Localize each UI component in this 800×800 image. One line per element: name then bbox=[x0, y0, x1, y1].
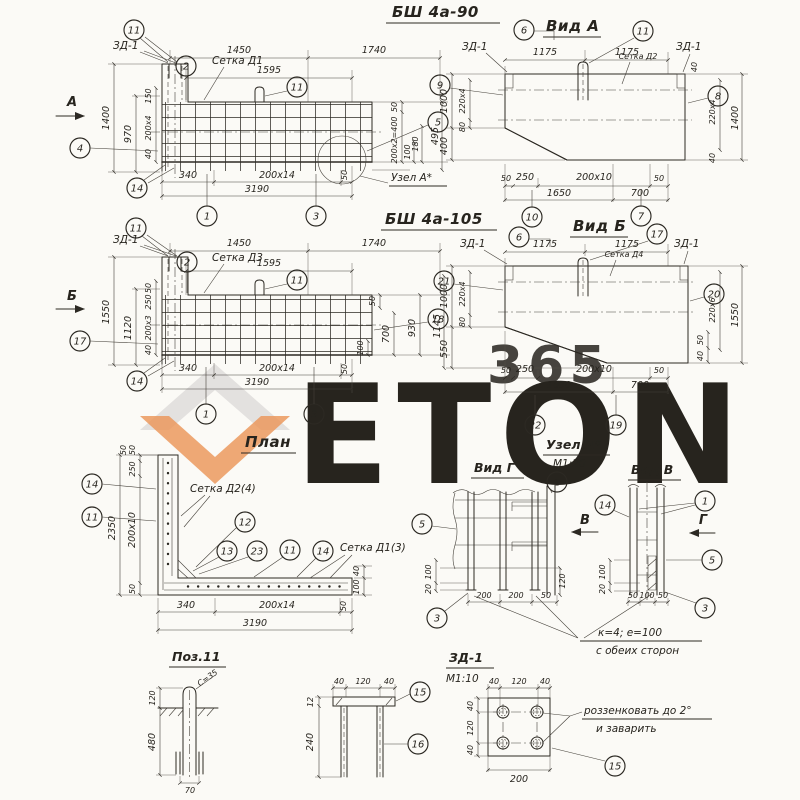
embed-plate-label: ЗД-1 bbox=[676, 41, 701, 53]
dim-label: 250 bbox=[128, 461, 137, 476]
svg-text:11: 11 bbox=[291, 83, 304, 94]
dim-label: 1120 bbox=[123, 316, 134, 340]
dim-label: 1175 bbox=[533, 47, 557, 58]
dim-label: 50 bbox=[119, 445, 128, 455]
svg-text:15: 15 bbox=[414, 688, 427, 699]
detail-title: Поз.11 bbox=[172, 649, 220, 664]
dim-label: 200х14 bbox=[259, 170, 295, 181]
dim-label: 200 bbox=[508, 591, 523, 600]
dim-label: 50 bbox=[368, 296, 377, 306]
dim-label: 200х10 bbox=[576, 172, 612, 183]
dim-label: 50 bbox=[339, 601, 348, 611]
embed-plate-label: ЗД-1 bbox=[113, 40, 138, 52]
mesh-label: Сетка Д3 bbox=[212, 252, 263, 264]
dim-label: 3190 bbox=[245, 184, 269, 195]
dim-label: 40 bbox=[708, 153, 717, 163]
dim-label: 970 bbox=[123, 125, 134, 143]
svg-text:1: 1 bbox=[702, 497, 708, 508]
dim-label: 120 bbox=[466, 720, 475, 735]
svg-text:14: 14 bbox=[131, 184, 144, 195]
dim-label: 150 bbox=[144, 88, 153, 103]
weld-note: к=4; е=100 bbox=[598, 627, 662, 639]
dim-label: 700 bbox=[631, 380, 649, 391]
section-marker: Г bbox=[699, 513, 708, 528]
svg-text:7: 7 bbox=[638, 212, 645, 223]
svg-text:5: 5 bbox=[419, 520, 425, 531]
dim-label: 180 bbox=[411, 136, 420, 151]
svg-text:17: 17 bbox=[651, 230, 664, 241]
detail-scale: М1:10 bbox=[446, 673, 479, 685]
dim-label: 3190 bbox=[243, 618, 267, 629]
dim-label: 120 bbox=[558, 573, 567, 588]
svg-text:22: 22 bbox=[529, 421, 542, 432]
dim-label: 80 bbox=[458, 122, 467, 132]
drawing-title: БШ 4а-90 bbox=[392, 3, 479, 21]
dim-label: 220х4 bbox=[458, 88, 467, 113]
dim-label: 50 bbox=[541, 591, 551, 600]
dim-label: 1000 bbox=[439, 89, 450, 113]
dim-label: 400 bbox=[439, 137, 450, 155]
dim-label: 40 bbox=[466, 745, 475, 755]
dim-label: 50 bbox=[128, 445, 137, 455]
mesh-label: Сетка Д4 bbox=[605, 250, 644, 259]
dim-label: 250 bbox=[144, 294, 153, 309]
svg-text:11: 11 bbox=[291, 276, 304, 287]
svg-text:6: 6 bbox=[521, 26, 527, 37]
dim-label: 40 bbox=[540, 677, 550, 686]
embed-plate-label: ЗД-1 bbox=[113, 234, 138, 246]
dim-label: 550 bbox=[439, 340, 450, 358]
dim-label: 50 bbox=[390, 102, 399, 112]
dim-label: 1550 bbox=[730, 303, 741, 327]
embed-plate-label: ЗД-1 bbox=[460, 238, 485, 250]
svg-text:4: 4 bbox=[77, 144, 83, 155]
dim-label: 240 bbox=[305, 733, 316, 751]
dim-label: 50 bbox=[501, 174, 511, 183]
weld-note: с обеих сторон bbox=[596, 645, 679, 657]
dim-label: 40 bbox=[466, 701, 475, 711]
detail-scale: М1:20 bbox=[553, 458, 586, 470]
dim-label: 220х6 bbox=[708, 297, 717, 322]
dim-label: 100 bbox=[356, 340, 365, 355]
svg-text:8: 8 bbox=[715, 92, 721, 103]
dim-label: 1740 bbox=[362, 238, 386, 249]
svg-text:12: 12 bbox=[239, 518, 252, 529]
dim-label: 50 bbox=[654, 366, 664, 375]
dim-label: 1175 bbox=[615, 239, 639, 250]
dim-label: 50 bbox=[340, 364, 349, 374]
dim-label: 200 bbox=[476, 591, 491, 600]
dim-label: 1400 bbox=[101, 106, 112, 130]
dim-label: 250 bbox=[516, 364, 534, 375]
embed-plate-label: ЗД-1 bbox=[674, 238, 699, 250]
svg-text:1: 1 bbox=[203, 410, 209, 421]
blueprint-sheet: 365 ETON БШ 4а-90 1450 1740 1595 1400 97… bbox=[0, 0, 800, 800]
dim-label: 50 bbox=[128, 584, 137, 594]
svg-text:11: 11 bbox=[130, 224, 143, 235]
dim-label: 70 bbox=[185, 786, 195, 795]
blueprint-canvas: 365 ETON БШ 4а-90 1450 1740 1595 1400 97… bbox=[0, 0, 800, 800]
svg-text:14: 14 bbox=[131, 377, 144, 388]
dim-label: 480 bbox=[147, 733, 158, 751]
dim-label: 1650 bbox=[547, 380, 571, 391]
dim-label: 200х14 bbox=[259, 600, 295, 611]
dim-label: 340 bbox=[179, 170, 197, 181]
dim-label: 200 bbox=[510, 774, 528, 785]
dim-label: 1450 bbox=[227, 238, 251, 249]
dim-label: 120 bbox=[355, 677, 370, 686]
dim-label: 40 bbox=[144, 345, 153, 355]
dim-label: 80 bbox=[458, 317, 467, 327]
detail-title: Узел А* bbox=[546, 437, 602, 452]
dim-label: 12 bbox=[306, 697, 315, 707]
mesh-label: Сетка Д1 bbox=[212, 55, 263, 67]
svg-text:14: 14 bbox=[317, 547, 330, 558]
svg-text:9: 9 bbox=[437, 81, 443, 92]
dim-label: 340 bbox=[179, 363, 197, 374]
svg-text:14: 14 bbox=[599, 501, 612, 512]
dim-label: 100 bbox=[352, 579, 361, 594]
mesh-label: Сетка Д2 bbox=[619, 52, 658, 61]
dim-label: 40 bbox=[690, 62, 699, 72]
machining-note: роззенковать до 2° bbox=[583, 705, 692, 717]
svg-text:17: 17 bbox=[74, 337, 87, 348]
dim-label: 40 bbox=[334, 677, 344, 686]
view-title: Вид Б bbox=[573, 217, 626, 235]
dim-label: 40 bbox=[384, 677, 394, 686]
dim-label: 20 bbox=[598, 584, 607, 594]
dim-label: 200х3 bbox=[144, 315, 153, 340]
svg-text:20: 20 bbox=[708, 290, 721, 301]
watermark-brand: ETON bbox=[295, 355, 748, 516]
svg-text:3: 3 bbox=[313, 212, 319, 223]
dim-label: 100 bbox=[598, 564, 607, 579]
svg-text:10: 10 bbox=[526, 213, 539, 224]
dim-label: 50 bbox=[696, 335, 705, 345]
svg-text:13: 13 bbox=[221, 547, 234, 558]
mesh-label: Сетка Д1(3) bbox=[340, 542, 406, 554]
dim-label: 250 bbox=[516, 172, 534, 183]
dim-label: 1400 bbox=[730, 106, 741, 130]
dim-label: 40 bbox=[696, 351, 705, 361]
svg-text:11: 11 bbox=[637, 27, 650, 38]
dim-label: 340 bbox=[177, 600, 195, 611]
dim-label: 200х2=400 bbox=[390, 116, 399, 163]
dim-label: 50 bbox=[340, 170, 349, 180]
svg-text:11: 11 bbox=[128, 26, 141, 37]
svg-text:23: 23 bbox=[251, 547, 264, 558]
section-marker: А bbox=[66, 95, 77, 110]
dim-label: 200х4 bbox=[144, 115, 153, 140]
dim-label: 1550 bbox=[101, 300, 112, 324]
dim-label: 120 bbox=[148, 690, 157, 705]
dim-label: 50 bbox=[654, 174, 664, 183]
dim-label: 1650 bbox=[547, 188, 571, 199]
dim-label: 200х10 bbox=[576, 364, 612, 375]
svg-text:15: 15 bbox=[609, 762, 622, 773]
svg-text:5: 5 bbox=[709, 556, 715, 567]
view-title: Вид В bbox=[631, 462, 673, 477]
dim-label: 1000 bbox=[439, 284, 450, 308]
dim-label: 700 bbox=[631, 188, 649, 199]
svg-text:21: 21 bbox=[438, 277, 451, 288]
dim-label: 50 bbox=[628, 591, 638, 600]
dim-label: 1175 bbox=[533, 239, 557, 250]
svg-text:18: 18 bbox=[432, 315, 445, 326]
node-label: Узел А* bbox=[391, 172, 432, 184]
dim-label: 100 bbox=[424, 564, 433, 579]
svg-text:6: 6 bbox=[516, 233, 522, 244]
mesh-label: Сетка Д2(4) bbox=[190, 483, 256, 495]
svg-text:3: 3 bbox=[702, 604, 708, 615]
detail-title: ЗД-1 bbox=[449, 650, 483, 665]
svg-text:16: 16 bbox=[412, 740, 425, 751]
svg-text:3: 3 bbox=[434, 614, 440, 625]
section-marker: Б bbox=[67, 289, 77, 304]
dim-label: 200х10 bbox=[127, 512, 138, 548]
dim-label: 220х4 bbox=[708, 99, 717, 124]
view-title: Вид Г bbox=[474, 460, 516, 475]
svg-text:11: 11 bbox=[86, 513, 99, 524]
svg-text:3: 3 bbox=[311, 410, 317, 421]
svg-text:11: 11 bbox=[284, 546, 297, 557]
dim-label: 3190 bbox=[245, 377, 269, 388]
section-marker: В bbox=[580, 513, 590, 528]
dim-label: 50 bbox=[501, 366, 511, 375]
dim-label: 40 bbox=[489, 677, 499, 686]
svg-text:1: 1 bbox=[554, 478, 560, 489]
machining-note: и заварить bbox=[596, 723, 657, 735]
svg-text:2: 2 bbox=[183, 62, 189, 73]
svg-text:1: 1 bbox=[204, 212, 210, 223]
svg-text:14: 14 bbox=[86, 480, 99, 491]
svg-text:5: 5 bbox=[435, 118, 441, 129]
dim-label: 1740 bbox=[362, 45, 386, 56]
drawing-title: БШ 4а-105 bbox=[385, 210, 483, 228]
dim-label: 120 bbox=[511, 677, 526, 686]
dim-label: 200х14 bbox=[259, 363, 295, 374]
dim-label: 40 bbox=[352, 566, 361, 576]
view-title: План bbox=[245, 433, 291, 451]
embed-plate-label: ЗД-1 bbox=[462, 41, 487, 53]
dim-label: 930 bbox=[407, 319, 418, 337]
svg-text:2: 2 bbox=[184, 258, 190, 269]
dim-label: 50 bbox=[144, 283, 153, 293]
dim-label: 20 bbox=[424, 584, 433, 594]
dim-label: 2350 bbox=[107, 516, 118, 540]
dim-label: 100 bbox=[639, 591, 654, 600]
svg-text:19: 19 bbox=[610, 421, 623, 432]
